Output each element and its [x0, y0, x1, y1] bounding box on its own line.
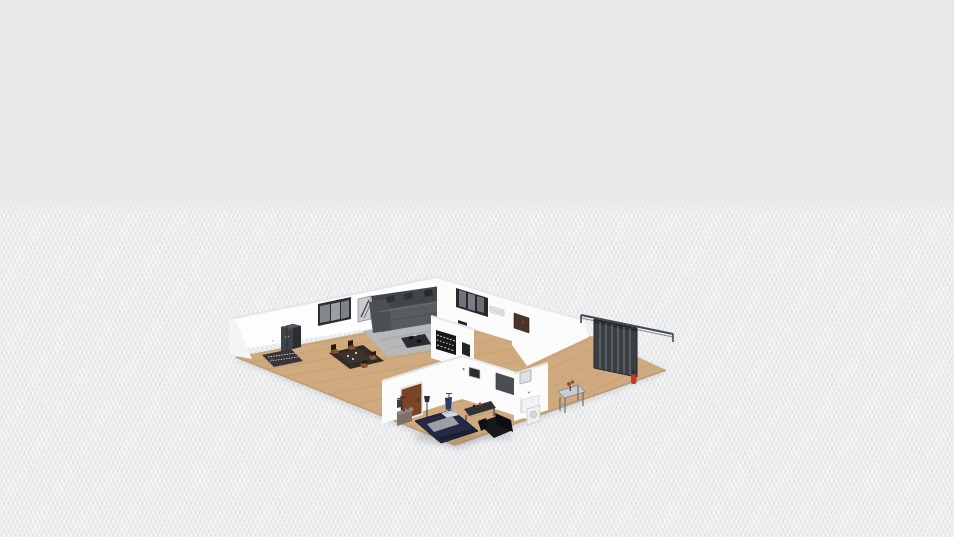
- apartment-render[interactable]: [0, 0, 954, 537]
- faucet: [528, 392, 530, 394]
- plate: [352, 358, 354, 360]
- cabinet-handle: [288, 336, 290, 338]
- plate: [355, 352, 357, 354]
- wall-sconce[interactable]: [272, 340, 274, 342]
- slatted-sliding-door[interactable]: [594, 319, 637, 377]
- wall-art-large[interactable]: [358, 296, 371, 322]
- accent-dot: [522, 322, 524, 324]
- desk-item-red: [479, 403, 482, 406]
- accent-dot: [271, 358, 273, 360]
- dresser-item: [407, 408, 409, 410]
- floorplan-3d-viewport[interactable]: [0, 0, 954, 537]
- hanging-garment: [397, 399, 401, 408]
- chaise: [369, 299, 392, 333]
- desk-item: [473, 405, 475, 407]
- accent-dot: [462, 368, 464, 370]
- dresser-item: [403, 410, 405, 412]
- blue-garment: [445, 397, 452, 410]
- door-knob: [418, 399, 420, 401]
- cabinet-handle: [285, 336, 287, 338]
- plate: [347, 355, 349, 357]
